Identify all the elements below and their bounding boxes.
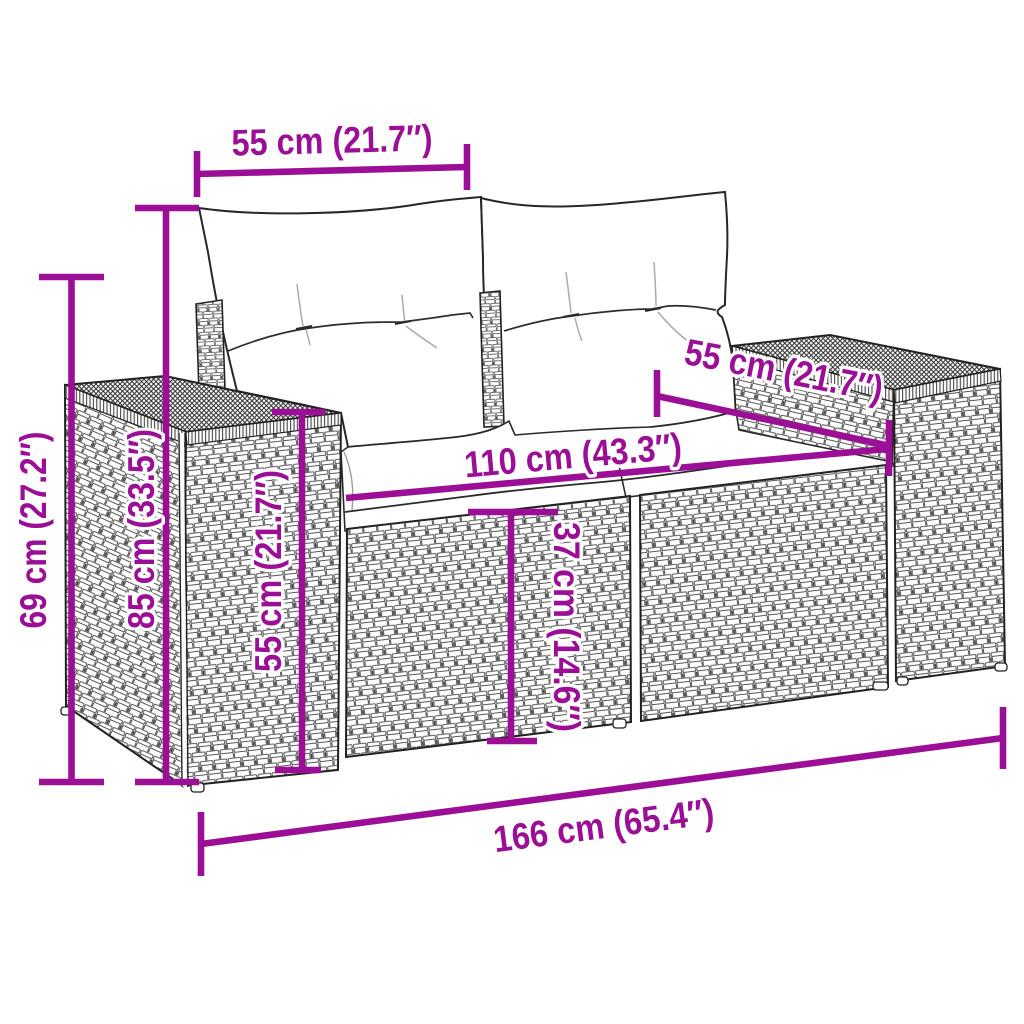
- svg-text:55 cm (21.7″): 55 cm (21.7″): [231, 117, 433, 163]
- svg-text:55 cm (21.7″): 55 cm (21.7″): [248, 470, 289, 672]
- svg-text:85 cm (33.5″): 85 cm (33.5″): [121, 429, 162, 629]
- svg-text:69 cm (27.2″): 69 cm (27.2″): [13, 432, 54, 629]
- svg-text:37 cm (14.6″): 37 cm (14.6″): [546, 522, 587, 732]
